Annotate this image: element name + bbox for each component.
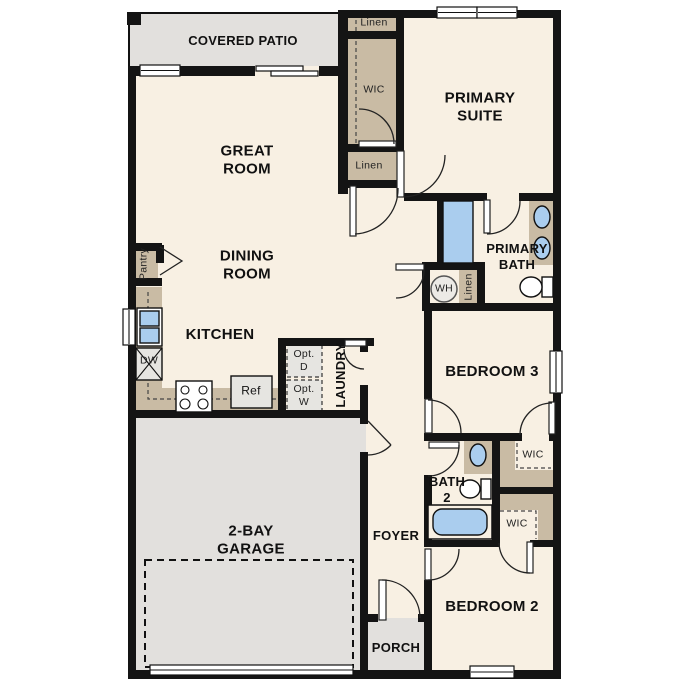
wall-bed2-top-right [530, 540, 561, 547]
slider-panel-2 [271, 71, 318, 76]
kitchen-label: KITCHEN [150, 326, 290, 344]
wall-porch-top-left [366, 614, 378, 622]
bath2-label: BATH 2 [424, 474, 470, 506]
patio-post [127, 12, 141, 25]
wall-exterior-left [128, 66, 136, 678]
great-room-label: GREAT ROOM [202, 143, 292, 180]
primary-suite-label: PRIMARY SUITE [425, 90, 535, 127]
bedroom2-label: BEDROOM 2 [427, 598, 557, 616]
wall-linen-mid-bottom [338, 180, 404, 188]
opt-dryer-label: Opt. D [289, 348, 319, 374]
bedroom3-door-leaf [425, 399, 432, 433]
wic-primary-label: WIC [349, 84, 399, 97]
primary-bath-door-leaf [484, 200, 490, 233]
wh-closet-door-leaf [396, 264, 424, 270]
wic-bed3-door-leaf [549, 402, 555, 434]
wall-laundry-left [278, 338, 286, 418]
pantry-label: Pantry [138, 248, 151, 280]
dining-room-label: DINING ROOM [202, 248, 292, 285]
wic-bed2-label: WIC [497, 518, 537, 531]
shower [443, 201, 473, 263]
wic-bed3-label: WIC [513, 449, 553, 462]
water-heater-label: WH [429, 283, 459, 296]
wic-bed2-door-leaf [527, 542, 533, 573]
bedroom3-label: BEDROOM 3 [427, 363, 557, 381]
primary-bath-label: PRIMARY BATH [477, 241, 557, 273]
wall-garage-right [360, 452, 368, 672]
refrigerator-label: Ref [231, 384, 271, 399]
wall-wic-divider [498, 487, 553, 494]
front-door-leaf [379, 580, 386, 620]
linen-wh-label: Linen [463, 273, 476, 300]
wall-bath-row-bottom [422, 303, 561, 311]
kitchen-sink-basin-1 [140, 311, 159, 326]
slider-panel-1 [256, 66, 303, 71]
bathtub [433, 509, 487, 535]
vanity-sink-1 [534, 206, 550, 228]
wic-primary-door-leaf [359, 141, 396, 147]
wall-hall-bed3-upper [424, 311, 432, 399]
wall-bed2-top-left [424, 540, 500, 547]
floor-plan: COVERED PATIO GREAT ROOM DINING ROOM KIT… [0, 0, 687, 687]
wall-suite-bottom-left [404, 193, 487, 201]
garage-label: 2-BAY GARAGE [201, 523, 301, 560]
wall-exterior-right [553, 10, 561, 679]
covered-patio-label: COVERED PATIO [188, 33, 298, 49]
bedroom2-door-leaf [425, 549, 431, 580]
wall-garage-right-stub [360, 418, 368, 424]
toilet-primary-tank [542, 277, 553, 297]
wall-bed3-bottom [424, 433, 522, 441]
opt-washer-label: Opt. W [289, 383, 319, 409]
laundry-label: LAUNDRY [333, 342, 349, 407]
linen-mid-door-leaf [350, 186, 356, 236]
linen-top-label: Linen [349, 17, 399, 30]
bath2-door-leaf [429, 442, 459, 448]
toilet-primary-bowl [520, 277, 542, 297]
wall-suite-bottom-right [519, 193, 557, 201]
wic-bed3-shelf-bottom [500, 470, 553, 487]
porch-label: PORCH [366, 640, 426, 656]
dishwasher-label: DW [134, 355, 164, 368]
toilet-bath2-tank [481, 479, 491, 499]
foyer-label: FOYER [366, 528, 426, 544]
wic-bed2-shelf-right [538, 494, 553, 540]
bath2-sink [470, 444, 486, 466]
wall-linen-top [346, 31, 398, 39]
wall-bed2-left [424, 580, 432, 672]
wall-garage-top [128, 410, 368, 418]
linen-mid-label: Linen [344, 160, 394, 173]
